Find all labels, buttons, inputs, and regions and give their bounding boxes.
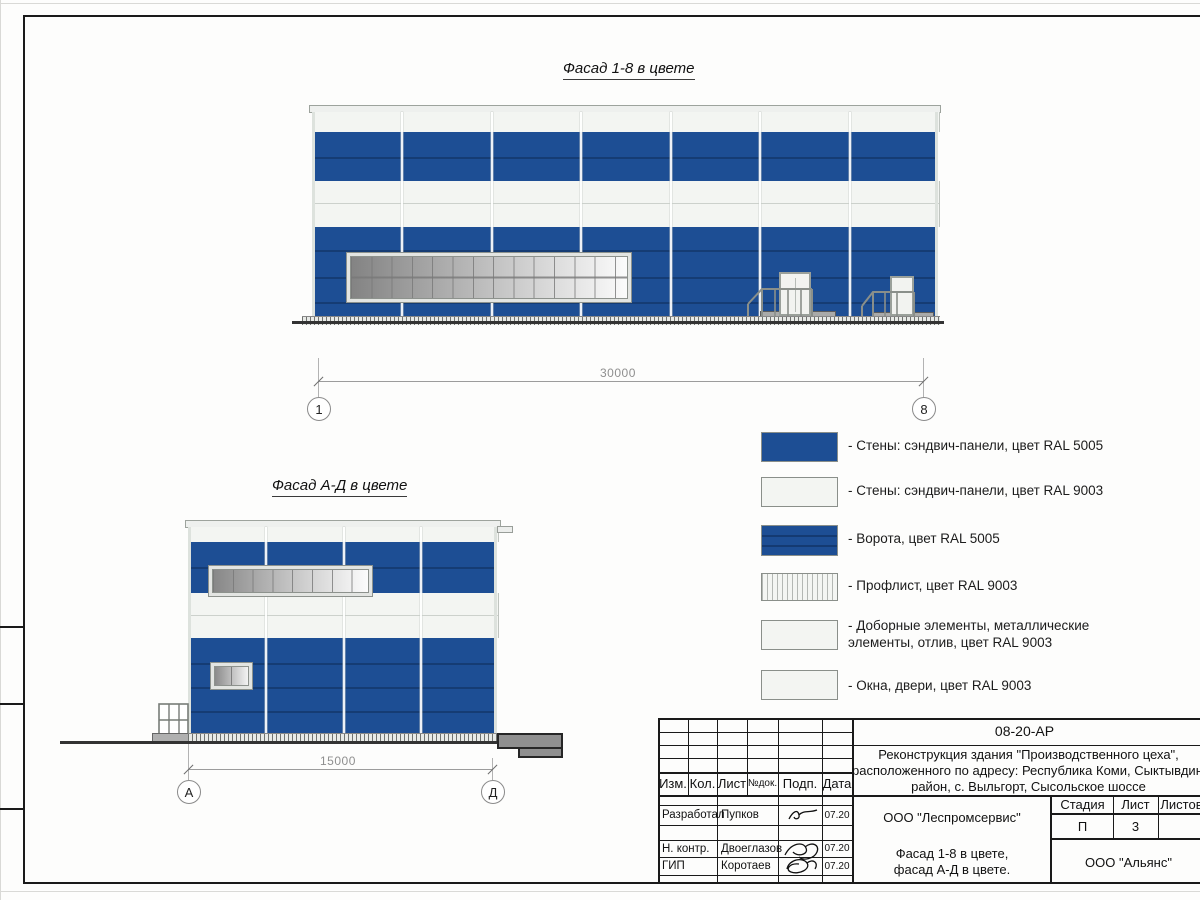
axis-label: 1 <box>315 402 322 417</box>
corner-trim <box>935 112 938 320</box>
col-ndok: №док. <box>747 772 778 795</box>
legend-swatch-wall-blue <box>761 432 838 462</box>
column-line <box>849 112 851 320</box>
window-glazing <box>350 256 628 299</box>
dimension-value: 30000 <box>600 366 636 380</box>
legend-label: - Профлист, цвет RAL 9003 <box>848 577 1148 594</box>
ribbon-window <box>346 252 632 303</box>
window-glazing <box>214 666 249 686</box>
ribbon-window <box>208 565 373 597</box>
axis-marker-a: А <box>177 780 201 804</box>
column-line <box>670 112 672 320</box>
project-line: Реконструкция здания "Производственного … <box>852 747 1200 763</box>
legend-swatch-trim <box>761 620 838 650</box>
extension-line <box>923 358 924 397</box>
col-izm: Изм. <box>658 772 688 795</box>
sheet-edge-left <box>0 0 1 900</box>
legend-label: - Окна, двери, цвет RAL 9003 <box>848 677 1148 694</box>
corner-trim <box>312 112 315 320</box>
margin-box-line <box>0 626 23 628</box>
axis-label: 8 <box>920 402 927 417</box>
dimension-line <box>318 381 923 382</box>
ground-line <box>292 321 944 324</box>
wall-stripe-white <box>312 181 940 227</box>
legend-swatch-windows-doors <box>761 670 838 700</box>
row-date: 07.20 <box>822 840 852 857</box>
row-role: ГИП <box>659 857 717 875</box>
list-value: 3 <box>1113 814 1158 838</box>
row-date: 07.20 <box>822 857 852 875</box>
small-window <box>210 662 253 690</box>
legend-label: - Ворота, цвет RAL 5005 <box>848 530 1148 547</box>
sheet-title: Фасад 1-8 в цвете, фасад А-Д в цвете. <box>854 840 1050 884</box>
legend-label: - Стены: сэндвич-панели, цвет RAL 5005 <box>848 437 1148 454</box>
stage-value: П <box>1052 814 1113 838</box>
margin-box-line <box>0 703 23 705</box>
corner-trim <box>494 527 497 735</box>
axis-label: А <box>185 785 194 800</box>
ramp <box>518 747 563 758</box>
row-name: Пупков <box>718 805 778 825</box>
wall-stripe-blue <box>312 132 938 181</box>
axis-marker-1: 1 <box>307 397 331 421</box>
col-podp: Подп. <box>778 772 822 795</box>
window-glazing <box>212 569 369 593</box>
row-role: Разработал <box>659 805 717 825</box>
column-line <box>420 527 422 735</box>
row-name: Двоеглазов <box>718 840 778 857</box>
listov-header: Листов <box>1158 795 1200 813</box>
sheet-edge-top <box>0 3 1200 4</box>
col-list: Лист <box>717 772 747 795</box>
ground-line <box>60 741 500 744</box>
margin-box-line <box>0 808 23 810</box>
dimension-line <box>188 769 492 770</box>
project-description: Реконструкция здания "Производственного … <box>852 747 1200 794</box>
project-line: район, с. Выльгорт, Сысольское шоссе <box>852 779 1200 795</box>
legend-swatch-wall-white <box>761 477 838 507</box>
column-line <box>343 527 345 735</box>
row-role: Н. контр. <box>659 840 717 857</box>
col-data: Дата <box>822 772 852 795</box>
extension-line <box>318 358 319 397</box>
organization-name: ООО "Леспромсервис" <box>854 797 1050 838</box>
document-number: 08-20-АР <box>852 718 1197 745</box>
col-kol: Кол. <box>688 772 717 795</box>
signature <box>786 807 820 823</box>
dimension-value: 15000 <box>320 754 356 768</box>
axis-marker-8: 8 <box>912 397 936 421</box>
railing <box>860 286 916 320</box>
legend-label: - Доборные элементы, металлические элеме… <box>848 617 1106 651</box>
signature <box>779 839 823 877</box>
legend-swatch-profiled-sheet <box>761 573 838 601</box>
project-line: расположенного по адресу: Республика Ком… <box>852 763 1200 779</box>
axis-marker-d: Д <box>481 780 505 804</box>
contractor-name: ООО "Альянс" <box>1052 840 1200 884</box>
row-name: Коротаев <box>718 857 778 875</box>
stage-header: Стадия <box>1052 795 1113 813</box>
column-line <box>265 527 267 735</box>
railing <box>746 282 814 320</box>
facade-1-8-title: Фасад 1-8 в цвете <box>563 60 695 80</box>
facade-a-d-title: Фасад А-Д в цвете <box>272 477 407 497</box>
axis-label: Д <box>489 785 498 800</box>
legend-label: - Стены: сэндвич-панели, цвет RAL 9003 <box>848 482 1148 499</box>
sheet-edge-bottom <box>0 891 1200 892</box>
extension-line <box>188 744 189 780</box>
row-date: 07.20 <box>822 805 852 825</box>
sheet-title-line: фасад А-Д в цвете. <box>854 862 1050 878</box>
drawing-sheet: Фасад 1-8 в цвете <box>0 0 1200 900</box>
legend-swatch-gate <box>761 525 838 556</box>
list-header: Лист <box>1113 795 1158 813</box>
wall-stripe-white <box>312 112 940 132</box>
gutter-outlet <box>497 526 513 533</box>
sheet-title-line: Фасад 1-8 в цвете, <box>854 846 1050 862</box>
